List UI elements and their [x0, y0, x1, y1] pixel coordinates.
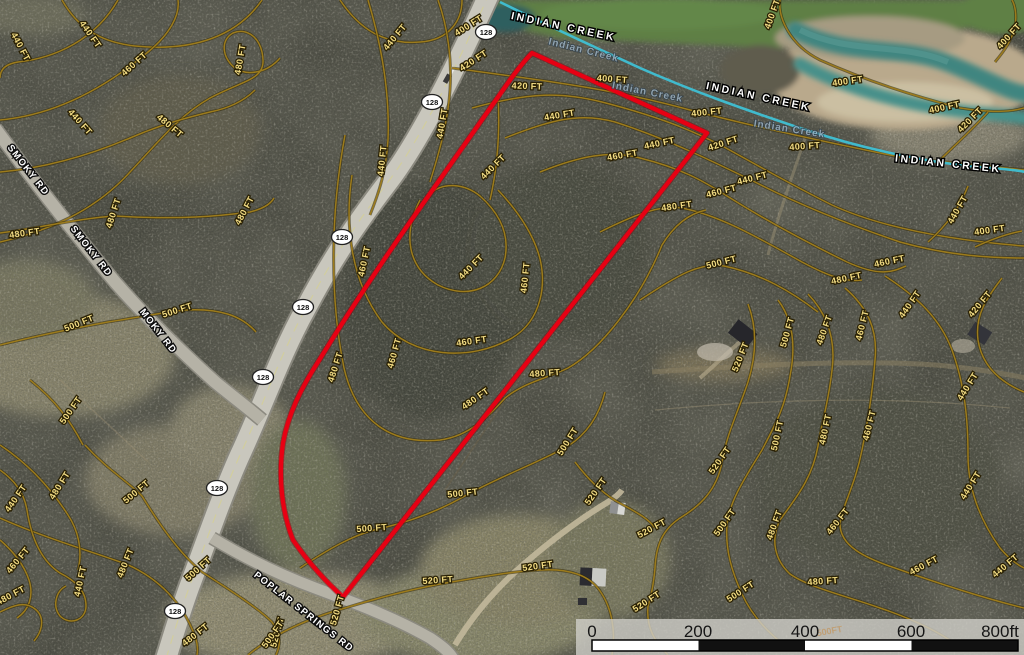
scale-tick-200: 200 — [684, 622, 712, 641]
scale-bar-segments — [592, 640, 1018, 651]
scale-tick-600: 600 — [897, 622, 925, 641]
route-128-shield: 128 — [165, 604, 186, 619]
scale-tick-800ft: 800ft — [981, 622, 1019, 641]
parcel-topo-map: 440 FT440 FT460 FT480 FT440 FT480 FT480 … — [0, 0, 1024, 655]
scale-tick-0: 0 — [587, 622, 596, 641]
route-128-shield: 128 — [253, 370, 274, 385]
route-shield-number: 128 — [336, 233, 349, 242]
route-shield-number: 128 — [211, 484, 224, 493]
route-128-shield: 128 — [332, 230, 353, 245]
route-shield-number: 128 — [297, 303, 310, 312]
scale-tick-400: 400 — [791, 622, 819, 641]
route-128-shield: 128 — [476, 25, 497, 40]
route-128-shield: 128 — [293, 300, 314, 315]
route-shield-number: 128 — [426, 98, 439, 107]
route-shield-number: 128 — [480, 28, 493, 37]
route-shield-number: 128 — [257, 373, 270, 382]
route-128-shield: 128 — [422, 95, 443, 110]
map-canvas[interactable]: 440 FT440 FT460 FT480 FT440 FT480 FT480 … — [0, 0, 1024, 655]
route-shield-number: 128 — [169, 607, 182, 616]
contour-label: 420 FT — [511, 80, 542, 91]
route-128-shield: 128 — [207, 481, 228, 496]
scale-bar: 500FT 0 200 400 600 800ft — [576, 619, 1024, 655]
